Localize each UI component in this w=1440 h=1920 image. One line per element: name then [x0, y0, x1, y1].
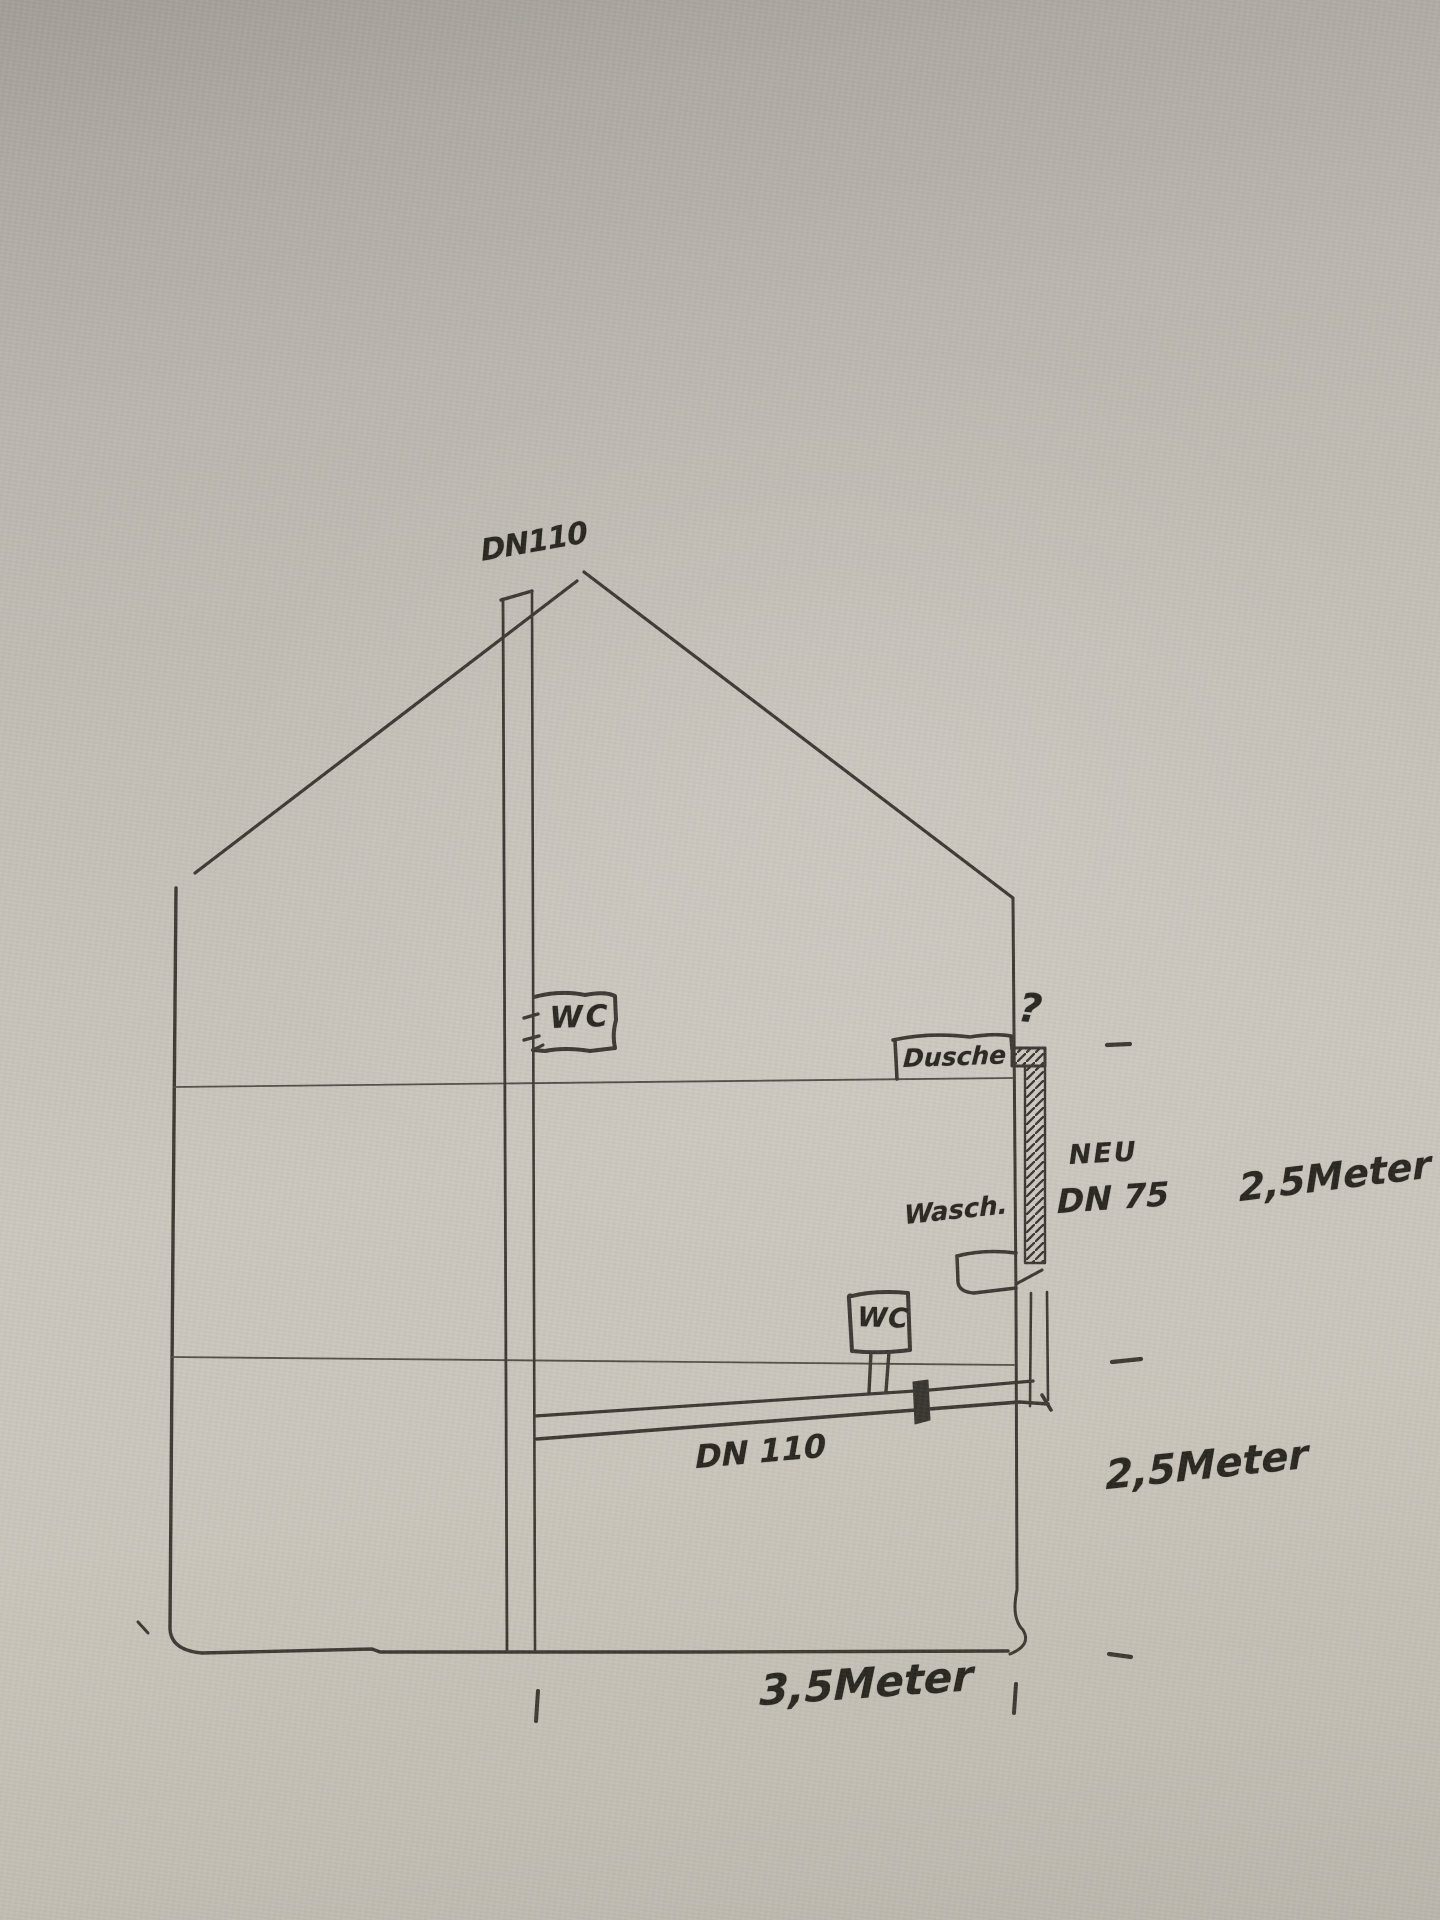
dim-dash-middle	[1112, 1359, 1141, 1362]
neu-label: NEU	[1068, 1136, 1138, 1171]
sloped-pipe-top-line	[535, 1381, 1033, 1416]
dn75-label: DN 75	[1057, 1174, 1169, 1221]
upper-wc-connector-tick	[524, 1036, 539, 1040]
basin-drain-tick	[1016, 1270, 1042, 1284]
dim-tick-bottom-left	[536, 1691, 538, 1721]
floor-line-upper	[174, 1078, 1013, 1087]
wall-dash-left	[138, 1622, 148, 1633]
dim-dash-ground	[1109, 1654, 1131, 1657]
lower-wc-leg	[886, 1352, 889, 1391]
right-drop-pipe	[1030, 1292, 1048, 1406]
roof-left-line	[195, 581, 577, 873]
sketch-canvas	[0, 0, 1440, 1920]
dn75-drop-hatched	[1025, 1066, 1045, 1263]
dusche-label: Dusche	[902, 1040, 1006, 1073]
lower-wc-label: WC	[857, 1302, 910, 1335]
pipe-fitting-blob	[913, 1380, 930, 1424]
upper-wc-label: WC	[549, 999, 611, 1036]
roof-right-line	[584, 572, 1013, 898]
lower-wc-leg	[869, 1352, 871, 1392]
dn75-header-hatched	[1012, 1048, 1045, 1066]
upper-wc-connector-tick	[524, 1014, 538, 1018]
paper-sheet: DN110 WC Dusche ? NEU DN 75 2,5Meter Was…	[0, 0, 1440, 1920]
dim-tick-bottom-right	[1014, 1684, 1016, 1713]
stack-top-cap	[501, 591, 532, 600]
dim-dash-upper	[1107, 1044, 1130, 1045]
question-mark-label: ?	[1016, 985, 1044, 1033]
main-stack-pipe	[501, 591, 535, 1650]
